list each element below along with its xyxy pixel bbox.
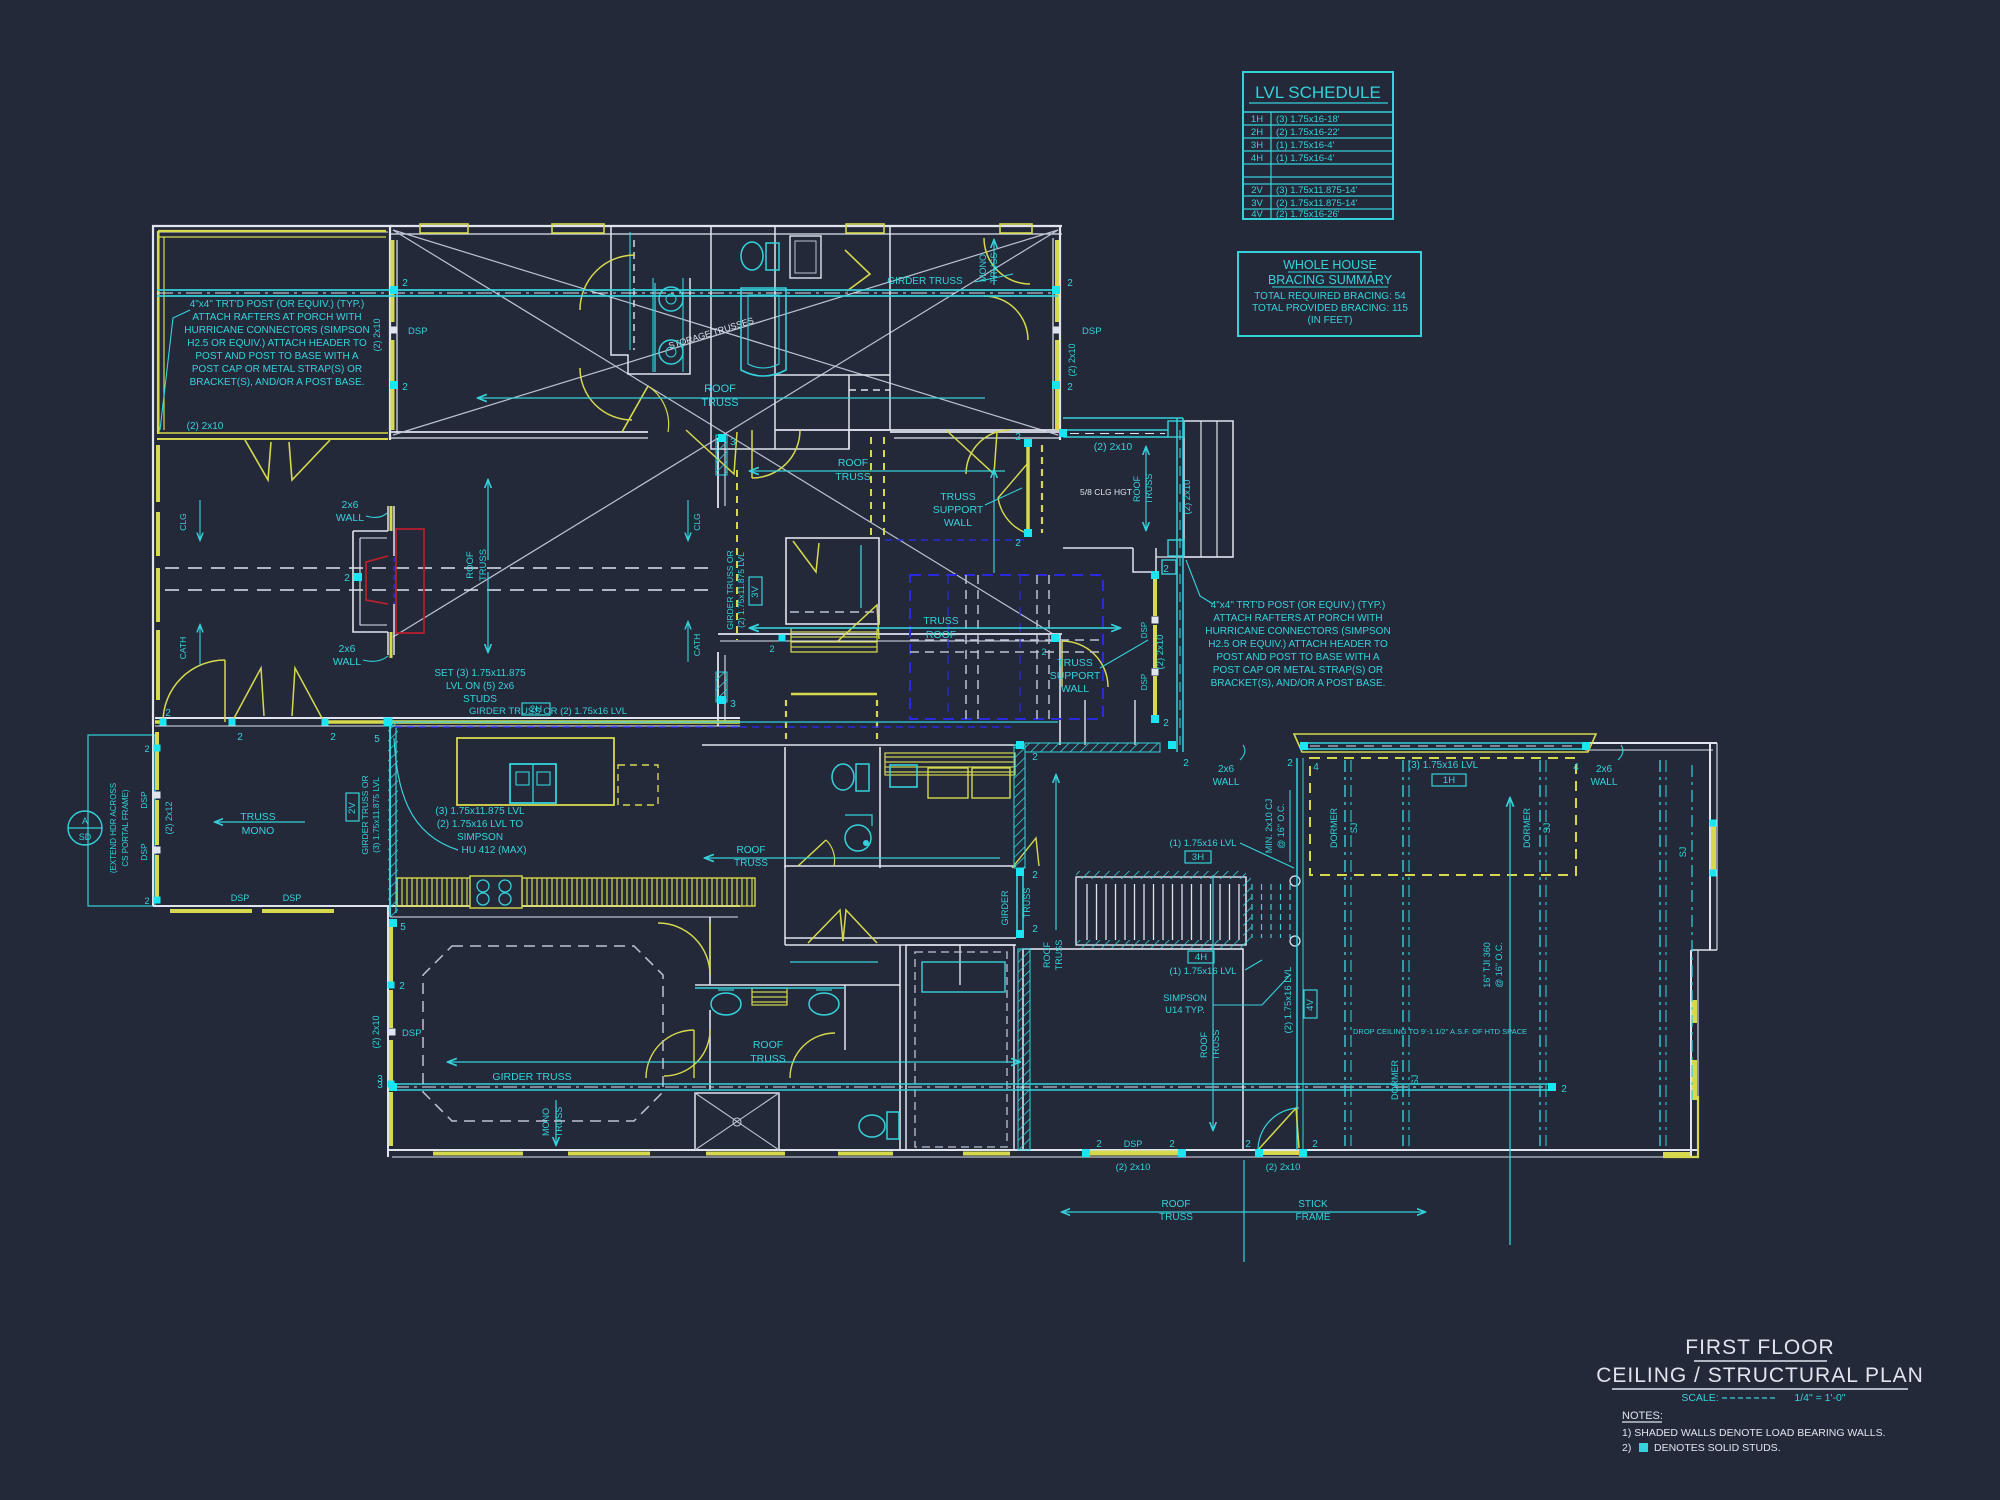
svg-text:H2.5 OR EQUIV.) ATTACH HEADER: H2.5 OR EQUIV.) ATTACH HEADER TO — [187, 338, 367, 349]
svg-text:16" TJI 360: 16" TJI 360 — [1482, 942, 1492, 988]
svg-text:2: 2 — [1163, 564, 1169, 575]
svg-text:(2) 2x10: (2) 2x10 — [187, 421, 224, 432]
svg-text:1/4" = 1'-0": 1/4" = 1'-0" — [1794, 1392, 1845, 1404]
svg-text:5: 5 — [374, 734, 380, 745]
svg-text:(2) 1.75x16-26': (2) 1.75x16-26' — [1276, 209, 1340, 220]
svg-text:(IN FEET): (IN FEET) — [1308, 315, 1353, 326]
svg-text:2: 2 — [1183, 758, 1189, 769]
svg-text:2V: 2V — [347, 802, 358, 814]
svg-text:DORMER: DORMER — [1522, 808, 1532, 848]
svg-text:(3) 1.75x16 LVL: (3) 1.75x16 LVL — [1408, 760, 1479, 771]
svg-text:1) SHADED WALLS DENOTE LOAD BE: 1) SHADED WALLS DENOTE LOAD BEARING WALL… — [1622, 1427, 1886, 1439]
svg-text:(2) 1.75x16-22': (2) 1.75x16-22' — [1276, 127, 1340, 138]
svg-text:@ 16" O.C.: @ 16" O.C. — [1276, 803, 1286, 849]
svg-text:MONO: MONO — [541, 1108, 551, 1136]
svg-text:2: 2 — [1015, 538, 1021, 549]
svg-text:DSP: DSP — [1124, 1139, 1143, 1149]
svg-text:(3) 1.75x16-18': (3) 1.75x16-18' — [1276, 114, 1340, 125]
svg-text:TRUSS: TRUSS — [734, 858, 768, 869]
svg-text:TOTAL REQUIRED BRACING: 54: TOTAL REQUIRED BRACING: 54 — [1254, 291, 1406, 302]
svg-text:HU 412 (MAX): HU 412 (MAX) — [461, 845, 526, 856]
svg-text:2: 2 — [1015, 432, 1021, 443]
svg-text:2: 2 — [165, 708, 171, 719]
svg-text:2: 2 — [769, 644, 774, 654]
svg-text:(2) 2x10: (2) 2x10 — [1116, 1162, 1151, 1173]
svg-text:TRUSS: TRUSS — [478, 549, 489, 581]
svg-text:MIN. 2x10 CJ: MIN. 2x10 CJ — [1264, 799, 1274, 854]
svg-text:LVL ON (5) 2x6: LVL ON (5) 2x6 — [446, 681, 515, 692]
svg-text:(2) 2x10: (2) 2x10 — [1266, 1162, 1301, 1173]
svg-text:DSP: DSP — [139, 843, 149, 861]
svg-text:POST CAP OR METAL STRAP(S) OR: POST CAP OR METAL STRAP(S) OR — [192, 364, 362, 375]
svg-text:SD: SD — [79, 832, 92, 842]
svg-text:2: 2 — [402, 382, 408, 393]
svg-text:SET (3) 1.75x11.875: SET (3) 1.75x11.875 — [434, 668, 526, 679]
svg-text:@ 16" O.C.: @ 16" O.C. — [1494, 942, 1504, 988]
svg-text:POST AND POST TO BASE WITH A: POST AND POST TO BASE WITH A — [1216, 652, 1380, 663]
svg-text:2: 2 — [330, 732, 336, 743]
svg-text:FRAME: FRAME — [1296, 1212, 1331, 1223]
svg-text:DSP: DSP — [408, 326, 428, 337]
svg-text:(1) 1.75x16 LVL: (1) 1.75x16 LVL — [1170, 966, 1237, 977]
svg-text:3: 3 — [377, 1080, 383, 1091]
svg-text:TRUSS: TRUSS — [940, 491, 976, 503]
svg-text:(2) 2x10: (2) 2x10 — [1094, 441, 1133, 453]
svg-text:TRUSS: TRUSS — [701, 397, 738, 409]
svg-text:(3) 1.75x11.875 LVL: (3) 1.75x11.875 LVL — [435, 806, 525, 817]
svg-text:2x6: 2x6 — [1218, 764, 1235, 775]
svg-text:SIMPSON: SIMPSON — [1163, 993, 1207, 1004]
svg-text:1H: 1H — [1443, 775, 1455, 786]
svg-text:ROOF: ROOF — [1132, 475, 1142, 502]
svg-text:(3) 1.75x11.875-14': (3) 1.75x11.875-14' — [1276, 185, 1358, 196]
svg-text:A: A — [82, 816, 88, 826]
svg-text:2: 2 — [1312, 1139, 1318, 1150]
svg-text:MONO: MONO — [978, 254, 988, 282]
svg-text:DROP CEILING TO 9'-1 1/2" A.S.: DROP CEILING TO 9'-1 1/2" A.S.F. OF HTD … — [1353, 1027, 1527, 1036]
svg-text:5/8 CLG HGT: 5/8 CLG HGT — [1080, 487, 1132, 497]
svg-text:4"x4" TRT'D POST (OR EQUIV.) (: 4"x4" TRT'D POST (OR EQUIV.) (TYP.) — [190, 299, 365, 310]
svg-text:DSP: DSP — [1082, 326, 1102, 337]
svg-text:GIRDER TRUSS OR: GIRDER TRUSS OR — [360, 775, 370, 854]
svg-text:(2) 2x10: (2) 2x10 — [372, 318, 382, 351]
svg-text:DSP: DSP — [231, 893, 250, 903]
svg-text:(1) 1.75x16-4': (1) 1.75x16-4' — [1276, 140, 1335, 151]
svg-text:(2) 2x10: (2) 2x10 — [1182, 480, 1193, 515]
svg-text:SUPPORT: SUPPORT — [1050, 670, 1101, 682]
svg-text:STUDS: STUDS — [463, 694, 497, 705]
svg-text:TRUSS: TRUSS — [835, 471, 871, 483]
svg-text:POST AND POST TO BASE WITH A: POST AND POST TO BASE WITH A — [195, 351, 359, 362]
svg-text:(2) 2x10: (2) 2x10 — [1155, 635, 1166, 670]
svg-text:TRUSS: TRUSS — [1057, 657, 1093, 669]
svg-text:3V: 3V — [750, 586, 761, 598]
svg-text:WALL: WALL — [1213, 777, 1240, 788]
svg-text:4H: 4H — [1195, 952, 1207, 963]
svg-text:2: 2 — [1032, 924, 1038, 935]
svg-text:H2.5 OR EQUIV.) ATTACH HEADER: H2.5 OR EQUIV.) ATTACH HEADER TO — [1208, 639, 1388, 650]
svg-text:3: 3 — [730, 699, 736, 710]
svg-text:ROOF: ROOF — [1042, 941, 1052, 968]
svg-text:POST CAP OR METAL STRAP(S) OR: POST CAP OR METAL STRAP(S) OR — [1213, 665, 1383, 676]
svg-text:NOTES:: NOTES: — [1622, 1410, 1663, 1422]
svg-text:DORMER: DORMER — [1329, 808, 1339, 848]
svg-text:DSP: DSP — [1140, 674, 1149, 690]
svg-text:U14 TYP.: U14 TYP. — [1165, 1005, 1205, 1016]
svg-text:2: 2 — [402, 278, 408, 289]
svg-text:TRUSS: TRUSS — [750, 1053, 786, 1065]
svg-text:WALL: WALL — [336, 512, 364, 524]
svg-text:(2) 1.75x11.875-14': (2) 1.75x11.875-14' — [1276, 198, 1358, 209]
svg-text:ATTACH RAFTERS AT PORCH WITH: ATTACH RAFTERS AT PORCH WITH — [192, 312, 361, 323]
svg-text:(1) 1.75x16-4': (1) 1.75x16-4' — [1276, 153, 1335, 164]
svg-text:WALL: WALL — [1061, 683, 1089, 695]
svg-text:2: 2 — [144, 896, 149, 906]
svg-text:2: 2 — [1287, 758, 1293, 769]
svg-text:WALL: WALL — [944, 517, 972, 529]
svg-text:2: 2 — [1096, 1139, 1102, 1150]
svg-text:ATTACH RAFTERS AT PORCH WITH: ATTACH RAFTERS AT PORCH WITH — [1213, 613, 1382, 624]
svg-text:SIMPSON: SIMPSON — [457, 832, 503, 843]
svg-text:CATH: CATH — [692, 634, 702, 657]
svg-text:2V: 2V — [1251, 185, 1263, 196]
svg-text:TRUSS: TRUSS — [1144, 474, 1154, 505]
svg-text:2: 2 — [344, 573, 350, 584]
svg-text:ROOF: ROOF — [1199, 1031, 1209, 1058]
svg-text:TRUSS: TRUSS — [1054, 940, 1064, 971]
svg-text:2: 2 — [1067, 278, 1073, 289]
svg-text:4"x4" TRT'D POST (OR EQUIV.) (: 4"x4" TRT'D POST (OR EQUIV.) (TYP.) — [1211, 600, 1386, 611]
svg-text:2: 2 — [1041, 647, 1046, 657]
svg-text:2: 2 — [1163, 718, 1169, 729]
svg-text:(2) 2x10: (2) 2x10 — [1067, 343, 1077, 376]
svg-text:SJ: SJ — [1349, 823, 1359, 834]
svg-text:(EXTEND HDR ACROSS: (EXTEND HDR ACROSS — [109, 783, 118, 873]
svg-text:GIRDER TRUSS: GIRDER TRUSS — [887, 276, 963, 287]
svg-text:DSP: DSP — [283, 893, 302, 903]
svg-text:DORMER: DORMER — [1390, 1060, 1400, 1100]
svg-text:(2) 1.75x16 LVL TO: (2) 1.75x16 LVL TO — [437, 819, 524, 830]
svg-text:(1) 1.75x16 LVL: (1) 1.75x16 LVL — [1170, 838, 1237, 849]
svg-text:TRUSS: TRUSS — [240, 811, 276, 823]
svg-text:3H: 3H — [1192, 852, 1204, 863]
svg-text:1H: 1H — [1251, 114, 1263, 125]
svg-text:TRUSS: TRUSS — [1159, 1212, 1193, 1223]
svg-text:BRACKET(S), AND/OR A POST BASE: BRACKET(S), AND/OR A POST BASE. — [190, 377, 365, 388]
svg-text:4V: 4V — [1305, 999, 1316, 1011]
svg-text:2: 2 — [1245, 1139, 1251, 1150]
svg-text:HURRICANE CONNECTORS (SIMPSON: HURRICANE CONNECTORS (SIMPSON — [184, 325, 369, 336]
svg-text:2: 2 — [1169, 1139, 1175, 1150]
svg-text:ROOF: ROOF — [737, 845, 766, 856]
svg-text:4H: 4H — [1251, 153, 1263, 164]
svg-text:4: 4 — [1313, 762, 1319, 773]
svg-text:2: 2 — [1032, 870, 1038, 881]
svg-text:GIRDER TRUSS OR (2) 1.75x16 LV: GIRDER TRUSS OR (2) 1.75x16 LVL — [469, 706, 627, 717]
svg-text:CEILING / STRUCTURAL PLAN: CEILING / STRUCTURAL PLAN — [1596, 1364, 1924, 1387]
svg-text:2x6: 2x6 — [342, 499, 359, 511]
svg-text:BRACKET(S), AND/OR A POST BASE: BRACKET(S), AND/OR A POST BASE. — [1211, 678, 1386, 689]
svg-text:ROOF: ROOF — [926, 629, 956, 641]
svg-text:ROOF: ROOF — [465, 551, 476, 579]
svg-text:(2) 2x10: (2) 2x10 — [371, 1015, 381, 1048]
svg-text:FIRST FLOOR: FIRST FLOOR — [1685, 1336, 1834, 1359]
svg-text:CLG: CLG — [692, 513, 702, 530]
svg-text:SJ: SJ — [1410, 1075, 1420, 1086]
svg-text:2H: 2H — [1251, 127, 1263, 138]
svg-text:2: 2 — [1067, 382, 1073, 393]
svg-text:WHOLE HOUSE: WHOLE HOUSE — [1283, 258, 1377, 272]
svg-text:2: 2 — [399, 981, 405, 992]
svg-text:2: 2 — [144, 744, 149, 754]
svg-text:TRUSS: TRUSS — [1211, 1030, 1221, 1061]
svg-text:2x6: 2x6 — [1596, 764, 1613, 775]
svg-text:CLG: CLG — [178, 513, 188, 530]
svg-text:2: 2 — [1561, 1084, 1567, 1095]
svg-text:ROOF: ROOF — [704, 383, 736, 395]
svg-text:SJ: SJ — [1542, 823, 1552, 834]
svg-text:STICK: STICK — [1298, 1199, 1328, 1210]
svg-text:TOTAL PROVIDED BRACING: 115: TOTAL PROVIDED BRACING: 115 — [1252, 303, 1408, 314]
svg-text:LVL SCHEDULE: LVL SCHEDULE — [1255, 83, 1381, 102]
svg-text:GIRDER TRUSS OR: GIRDER TRUSS OR — [725, 550, 735, 629]
svg-text:WALL: WALL — [333, 656, 361, 668]
svg-text:DENOTES SOLID STUDS.: DENOTES SOLID STUDS. — [1654, 1442, 1781, 1454]
svg-text:SJ: SJ — [1678, 847, 1688, 858]
svg-text:ROOF: ROOF — [753, 1039, 783, 1051]
svg-text:ROOF: ROOF — [838, 457, 868, 469]
svg-text:CATH: CATH — [178, 637, 188, 660]
svg-text:5: 5 — [400, 922, 406, 933]
svg-text:TRUSS: TRUSS — [1022, 888, 1032, 919]
svg-text:2: 2 — [237, 732, 243, 743]
svg-text:4V: 4V — [1251, 209, 1263, 220]
svg-text:DSP: DSP — [402, 1028, 422, 1039]
svg-text:GIRDER: GIRDER — [1000, 890, 1010, 926]
svg-text:MONO: MONO — [242, 825, 275, 837]
svg-text:2): 2) — [1622, 1442, 1631, 1454]
svg-text:GIRDER TRUSS: GIRDER TRUSS — [492, 1071, 571, 1083]
svg-text:3: 3 — [730, 437, 736, 448]
svg-text:SUPPORT: SUPPORT — [933, 504, 984, 516]
svg-text:CS PORTAL FRAME): CS PORTAL FRAME) — [121, 789, 130, 867]
svg-text:DSP: DSP — [139, 791, 149, 809]
svg-text:(2) 1.75x16 LVL: (2) 1.75x16 LVL — [1283, 967, 1294, 1034]
svg-text:BRACING SUMMARY: BRACING SUMMARY — [1268, 273, 1393, 287]
svg-text:ROOF: ROOF — [1162, 1199, 1191, 1210]
svg-text:4: 4 — [1573, 762, 1579, 773]
svg-text:(2) 2x12: (2) 2x12 — [164, 801, 174, 834]
svg-text:DSP: DSP — [1140, 622, 1149, 638]
svg-text:HURRICANE CONNECTORS (SIMPSON: HURRICANE CONNECTORS (SIMPSON — [1205, 626, 1390, 637]
svg-text:TRUSS: TRUSS — [923, 615, 959, 627]
svg-text:3V: 3V — [1251, 198, 1263, 209]
svg-text:3H: 3H — [1251, 140, 1263, 151]
svg-text:SCALE:: SCALE: — [1681, 1392, 1718, 1404]
svg-text:WALL: WALL — [1591, 777, 1618, 788]
svg-text:2x6: 2x6 — [339, 643, 356, 655]
svg-text:(3) 1.75x11.875 LVL: (3) 1.75x11.875 LVL — [371, 777, 381, 853]
svg-text:2: 2 — [1032, 752, 1038, 763]
